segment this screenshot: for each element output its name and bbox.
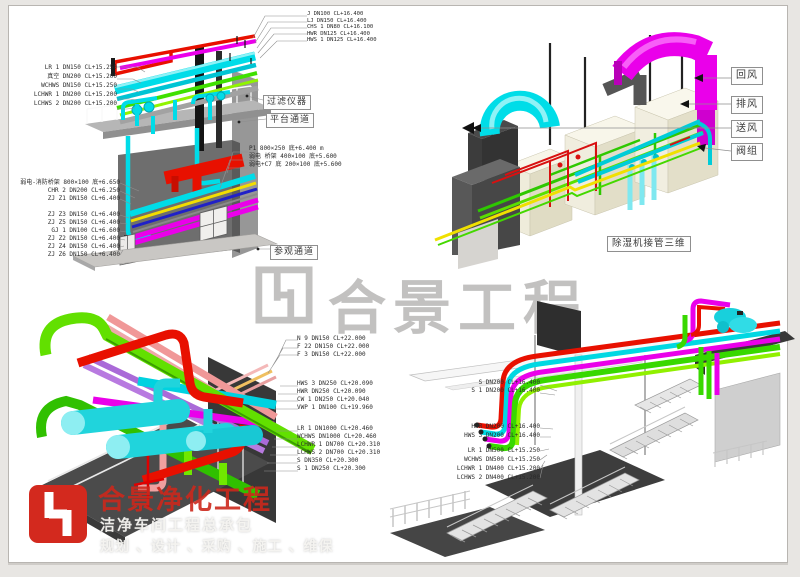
v3-top-labels: N 9 DN150 CL+22.000 F 22 DN150 CL+22.000… (297, 335, 369, 359)
pipe-label: S 1 DN250 CL+20.300 (297, 465, 380, 473)
pipe-label: HWR DN250 CL+20.090 (297, 388, 373, 396)
pump-cluster (714, 308, 757, 333)
v4-labels-c: LR 1 DN500 CL+15.250 WCHWS DN500 CL+15.2… (448, 446, 540, 482)
pipe-label: S DN350 CL+20.300 (297, 457, 380, 465)
tag-platform-walkway: 平台通道 (266, 113, 314, 128)
pipe-label: HWS 3 DN250 CL+20.090 (297, 380, 373, 388)
pipe-label: ZJ Z6 DN150 CL+6.400 (48, 251, 120, 259)
v1-left-lower-labels-a: 弱电-消防桥架 800×100 底+6.650 CHR 2 DN200 CL+6… (36, 179, 120, 203)
pipe-label: P1 800×250 底+6.400 m (249, 145, 342, 153)
pipe-label: ZJ Z4 DN150 CL+6.400 (48, 243, 120, 251)
pipe-label: HWR DN200 CL+16.400 (471, 422, 540, 431)
pipe-label: LR 1 DN500 CL+15.250 (468, 446, 540, 455)
pipe-label: HWS 1 DN125 CL+16.400 (307, 37, 377, 44)
pipe-label: WCHWS DN150 CL+15.250 (41, 81, 117, 90)
pipe-label: S 1 DN200 CL+16.400 (471, 387, 540, 395)
pipe-label: LCHWR 1 DN700 CL+20.310 (297, 441, 380, 449)
pipe-label: VWP 1 DN100 CL+19.960 (297, 404, 373, 412)
tag-exhaust-air: 排风 (731, 96, 763, 114)
tag-return-air: 回风 (731, 67, 763, 85)
company-logo-icon (28, 484, 88, 544)
stair-tower-drawing (385, 295, 795, 567)
tag-dehumidifier-caption: 除湿机接管三维 (607, 236, 691, 252)
v3-mid-labels: HWS 3 DN250 CL+20.090 HWR DN250 CL+20.09… (297, 380, 373, 412)
company-name: 合景净化工程 (98, 478, 272, 517)
pipe-label: F 22 DN150 CL+22.000 (297, 343, 369, 351)
pipe-label: ZJ Z1 DN150 CL+6.400 (48, 195, 120, 203)
pipe-label: LCHWS 2 DN700 CL+20.310 (297, 449, 380, 457)
pipe-label: 弱电+C7 底 200×100 底+5.600 (249, 161, 342, 169)
company-logo-svg (28, 484, 88, 544)
pipe-label: CHR 2 DN200 CL+6.250 (48, 187, 120, 195)
tag-supply-air: 送风 (731, 120, 763, 138)
drawing-sheet: 合景工程 (0, 0, 800, 577)
pipe-label: 真空 DN200 CL+15.200 (47, 72, 117, 81)
pipe-label: ZJ Z2 DN150 CL+6.400 (48, 235, 120, 243)
v4-labels-a: S DN200 CL+16.400 S 1 DN200 CL+16.400 (448, 379, 540, 395)
v1-left-lower-labels-b: ZJ Z3 DN150 CL+6.400 ZJ Z5 DN150 CL+6.40… (36, 211, 120, 259)
pipe-label: HWS 3 DN200 CL+16.400 (464, 431, 540, 440)
pipe-label: LCHWS 2 DN400 CL+15.200 (457, 473, 540, 482)
pipe-label: LCHWS 2 DN200 CL+15.200 (34, 99, 117, 108)
pipe-label: N 9 DN150 CL+22.000 (297, 335, 369, 343)
view-stair-tower (385, 295, 795, 567)
v1-right-mid-labels: P1 800×250 底+6.400 m 弱电 桥架 400×100 底+5.6… (249, 145, 342, 169)
company-tagline-2: 规划 、设计 、采购 、施工 、维保 (100, 536, 334, 556)
pipe-label: GJ 1 DN100 CL+6.600 (51, 227, 120, 235)
pipe-label: 弱电-消防桥架 800×100 底+6.650 (20, 179, 120, 187)
pipe-label: 弱电 桥架 400×100 底+5.600 (249, 153, 342, 161)
tag-filter-instrument: 过滤仪器 (263, 95, 311, 110)
v1-left-upper-labels: LR 1 DN150 CL+15.250 真空 DN200 CL+15.200 … (38, 63, 117, 108)
pipe-label: CW 1 DN250 CL+20.040 (297, 396, 373, 404)
pipe-label: LR 1 DN150 CL+15.250 (45, 63, 117, 72)
pipe-label: LCHWR 1 DN400 CL+15.200 (457, 464, 540, 473)
v1-top-labels: J DN100 CL+16.400 LJ DN150 CL+16.400 CHS… (307, 11, 377, 44)
tag-visitor-walkway: 参观通道 (270, 245, 318, 260)
pipe-label: LR 1 DN1000 CL+20.460 (297, 425, 380, 433)
company-tagline-1: 洁净车间工程总承包 (100, 514, 253, 535)
pipe-label: ZJ Z5 DN150 CL+6.400 (48, 219, 120, 227)
v3-low-labels: LR 1 DN1000 CL+20.460 WCHWS DN1000 CL+20… (297, 425, 380, 473)
pipe-label: F 3 DN150 CL+22.000 (297, 351, 369, 359)
pipe-label: LCHWR 1 DN200 CL+15.200 (34, 90, 117, 99)
tag-valve-group: 阀组 (731, 143, 763, 161)
pipe-label: S DN200 CL+16.400 (479, 379, 540, 387)
pipe-label: WCHWS DN1000 CL+20.460 (297, 433, 380, 441)
pipe-label: ZJ Z3 DN150 CL+6.400 (48, 211, 120, 219)
v4-labels-b: HWR DN200 CL+16.400 HWS 3 DN200 CL+16.40… (448, 422, 540, 440)
pipe-label: WCHWS DN500 CL+15.250 (464, 455, 540, 464)
left-unit (452, 120, 520, 269)
